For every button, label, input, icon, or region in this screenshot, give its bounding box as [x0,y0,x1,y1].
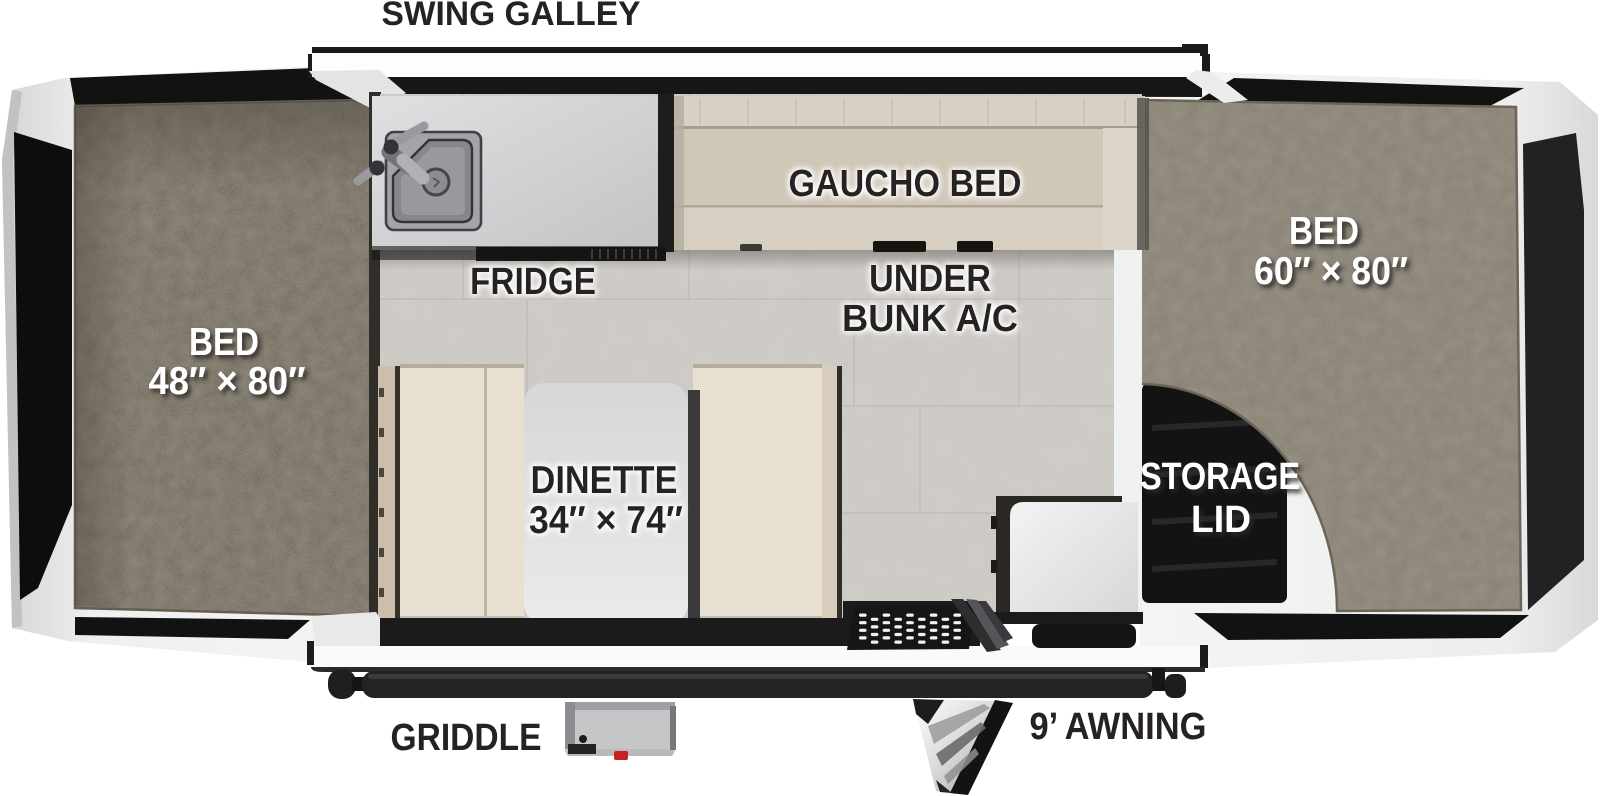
svg-text:60″ × 80″: 60″ × 80″ [1254,250,1408,293]
svg-text:DINETTE: DINETTE [531,459,678,502]
svg-text:UNDER: UNDER [869,258,991,300]
svg-text:FRIDGE: FRIDGE [470,261,596,303]
svg-text:BUNK A/C: BUNK A/C [842,298,1018,340]
svg-text:GAUCHO BED: GAUCHO BED [789,163,1022,205]
svg-text:STORAGE: STORAGE [1140,456,1300,498]
svg-text:48″ × 80″: 48″ × 80″ [149,360,306,403]
svg-text:LID: LID [1191,499,1251,541]
svg-text:BED: BED [1289,210,1359,253]
svg-text:9’ AWNING: 9’ AWNING [1030,706,1207,748]
svg-text:SWING GALLEY: SWING GALLEY [382,0,641,33]
svg-text:GRIDDLE: GRIDDLE [391,717,542,759]
svg-text:34″ × 74″: 34″ × 74″ [529,499,683,542]
svg-text:BED: BED [189,321,259,364]
